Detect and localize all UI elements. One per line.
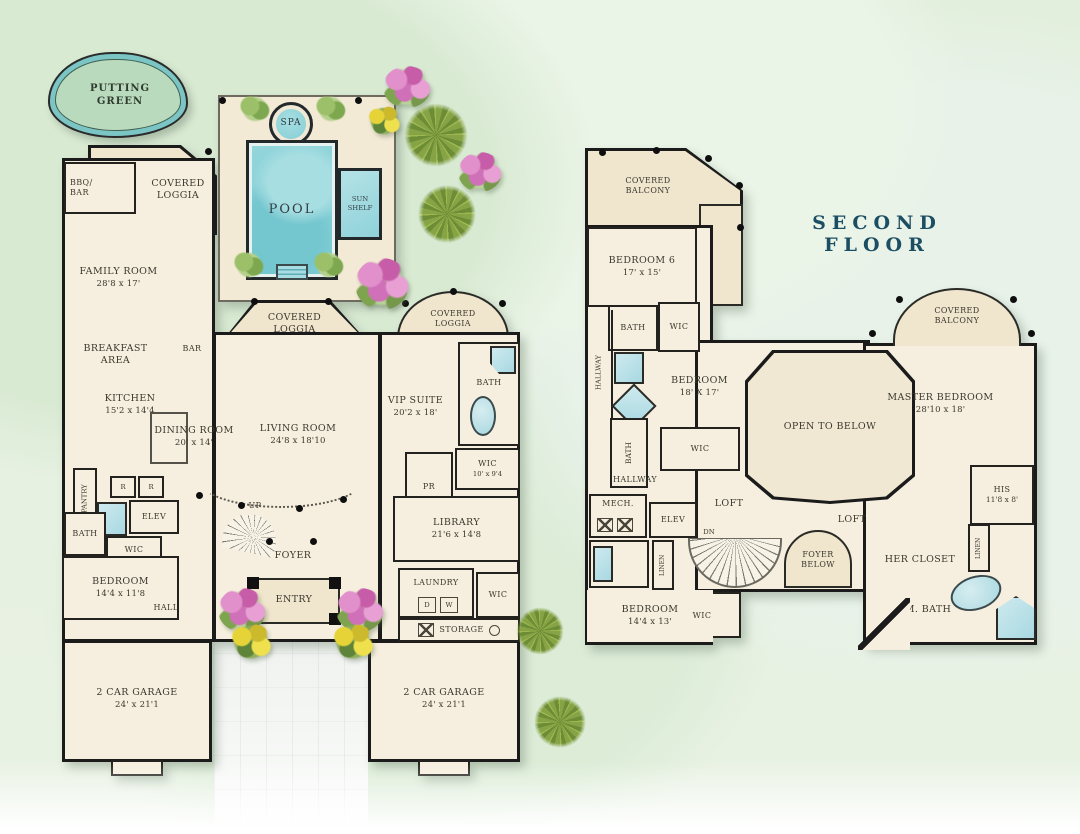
palm-tree-icon — [402, 98, 470, 172]
column-dot — [599, 149, 606, 156]
linen-west-label: LINEN — [654, 542, 672, 588]
column-dot — [1010, 296, 1017, 303]
room-his-closet: HIS 11'8 x 8' — [970, 465, 1034, 525]
bedroom-sw-wic-label: WIC — [672, 608, 732, 624]
room-name: MASTER BEDROOM — [887, 392, 993, 404]
room-bedroom6: BEDROOM 6 17' x 15' — [587, 227, 697, 307]
room-dims: 18' X 17' — [680, 388, 720, 399]
covered-balcony-east-label: COVERED BALCONY — [922, 302, 992, 330]
room-dims: 28'10 x 18' — [916, 405, 966, 416]
elevator2-label: ELEV — [651, 504, 695, 536]
column-dot — [653, 147, 660, 154]
room-dims: 17' x 15' — [623, 268, 661, 279]
room-bedroom-center-wic: WIC — [660, 427, 740, 471]
loft-west-label: LOFT — [703, 496, 755, 512]
hallway-west: HALLWAY — [587, 310, 613, 435]
room-name: BEDROOM — [622, 604, 679, 616]
room-bedroom6-bath: BATH — [608, 305, 658, 351]
flower-yellow-icon — [228, 624, 274, 660]
room-elevator2: ELEV — [649, 502, 697, 538]
room-linen-west: LINEN — [652, 540, 674, 590]
palm-tree-icon — [416, 180, 478, 248]
flower-yellow-icon — [366, 106, 402, 136]
room-name: BEDROOM — [671, 375, 728, 387]
foyer-below-label: FOYER BELOW — [788, 536, 848, 584]
master-bedroom-label: MASTER BEDROOM 28'10 x 18' — [878, 388, 1003, 420]
her-closet-label: HER CLOSET — [880, 545, 960, 575]
column-dot — [869, 330, 876, 337]
room-dims: 11'8 x 8' — [986, 495, 1018, 505]
mech-label: MECH. — [591, 498, 645, 511]
shower-icon — [996, 596, 1036, 640]
hallway-south-label: HALLWAY — [595, 472, 675, 488]
palm-tree-icon — [530, 694, 590, 750]
column-dot — [737, 224, 744, 231]
column-dot — [705, 155, 712, 162]
room-mech: MECH. — [589, 494, 647, 538]
bedroom6-bath-label: BATH — [610, 307, 656, 349]
bedroom6-wic-label: WIC — [660, 304, 698, 350]
bedroom6-label: BEDROOM 6 17' x 15' — [589, 229, 695, 305]
flower-yellow-icon — [330, 624, 376, 660]
flower-pink-icon — [355, 258, 409, 310]
shower-icon — [593, 546, 613, 582]
room-bedroom6-wic: WIC — [658, 302, 700, 352]
mech-unit-icon — [597, 518, 613, 532]
floor-plan-canvas: PUTTING GREEN — [0, 0, 1080, 834]
room-name: HIS — [994, 485, 1011, 495]
column-dot — [736, 182, 743, 189]
room-sf-bath-small — [589, 540, 649, 588]
room-name: BEDROOM 6 — [609, 255, 676, 267]
bedroom-center-label: BEDROOM 18' X 17' — [652, 372, 747, 402]
stairs-dn-icon — [688, 538, 782, 588]
room-dims: 14'4 x 13' — [628, 617, 672, 628]
palm-tree-icon — [512, 606, 568, 656]
column-dot — [1028, 330, 1035, 337]
hallway-west-label: HALLWAY — [587, 310, 611, 435]
his-closet-label: HIS 11'8 x 8' — [972, 467, 1032, 523]
loft-east-label: LOFT — [826, 512, 878, 528]
room-linen-east: LINEN — [968, 524, 990, 572]
her-closet-chamfer — [858, 598, 910, 650]
foyer-below-shape: FOYER BELOW — [784, 530, 852, 588]
linen-east-label: LINEN — [970, 526, 988, 570]
column-dot — [896, 296, 903, 303]
stairs-dn-label: DN — [696, 526, 722, 538]
mech-unit-icon — [617, 518, 633, 532]
shower-icon — [614, 352, 644, 384]
bedroom-center-wic-label: WIC — [662, 429, 738, 469]
covered-balcony-west-label: COVERED BALCONY — [608, 172, 688, 200]
second-floor-title: SECOND FLOOR — [782, 212, 972, 238]
open-to-below-label: OPEN TO BELOW — [760, 418, 900, 436]
